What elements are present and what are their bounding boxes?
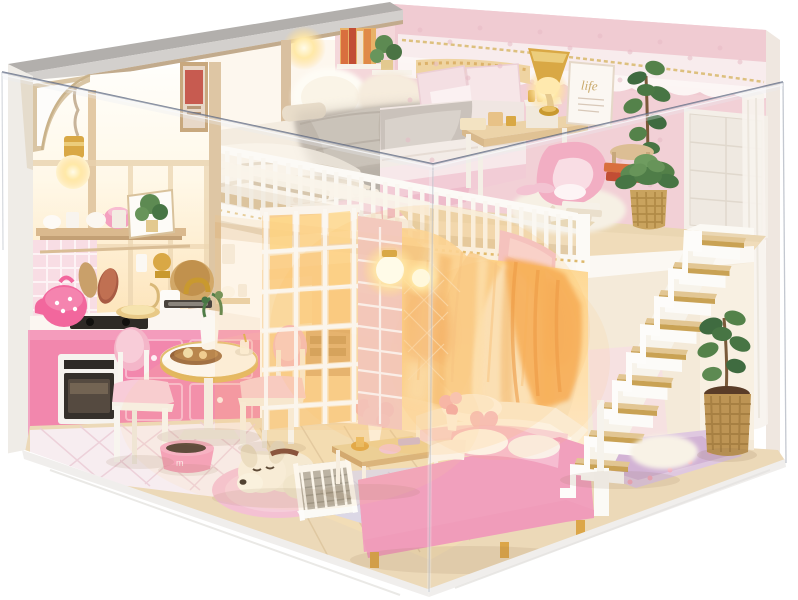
svg-text:life: life	[581, 78, 599, 94]
svg-text:m: m	[176, 458, 184, 468]
